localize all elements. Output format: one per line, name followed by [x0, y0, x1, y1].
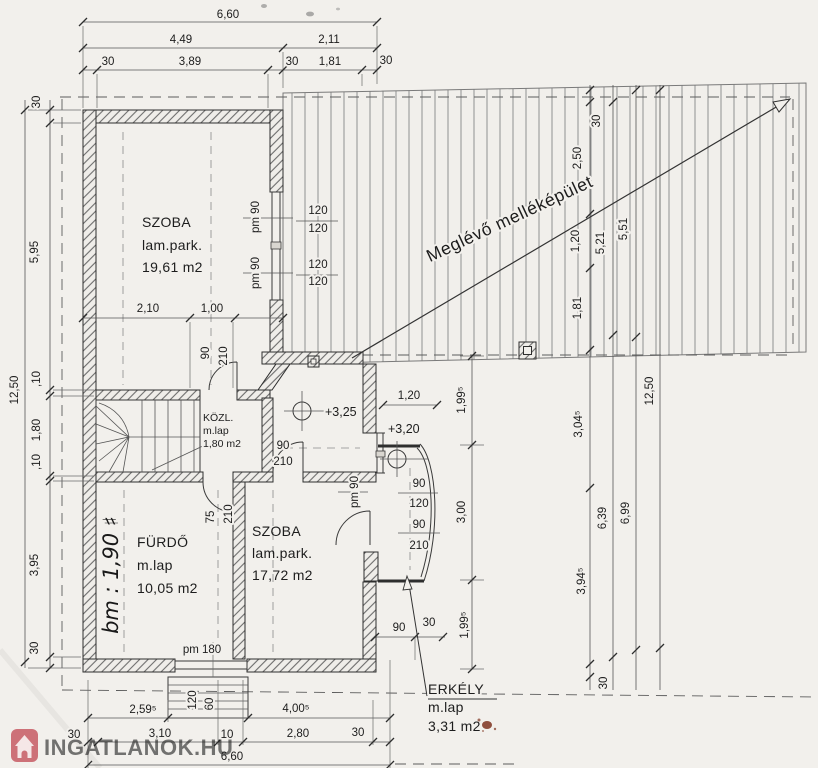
- dim-label: 30: [423, 617, 436, 629]
- window-size-label: 90: [413, 478, 426, 490]
- steps-size-label: 120: [187, 690, 199, 709]
- room-finish: m.lap: [203, 425, 229, 437]
- room-name: SZOBA: [142, 214, 191, 230]
- door-size-label: 210: [223, 504, 235, 523]
- dim-label: 1,20: [570, 230, 582, 252]
- window-parapet-label: pm 90: [250, 201, 262, 233]
- small-fixture: [308, 356, 319, 367]
- window-parapet-label: pm 180: [183, 644, 221, 656]
- dim-label: 5,51: [618, 218, 630, 240]
- window-size-label: 120: [308, 276, 327, 288]
- window-size-label: 120: [308, 205, 327, 217]
- window-size-label: 210: [409, 540, 428, 552]
- dim-label: 3,89: [179, 56, 201, 68]
- window-size-label: 120: [409, 498, 428, 510]
- dim-label: 6,39: [597, 507, 609, 529]
- dim-label: 30: [29, 642, 41, 655]
- door-size-label: 90: [277, 440, 290, 452]
- dim-label: 30: [598, 677, 610, 690]
- dim-label: 2,10: [137, 303, 159, 315]
- room-area: 19,61 m2: [142, 259, 203, 275]
- room-finish: lam.park.: [142, 237, 202, 253]
- dim-label: 1,20: [398, 390, 420, 402]
- floor-plan-page: 6,60 4,49 2,11 30 3,89 30 1,81 30 30 5,9…: [0, 0, 818, 768]
- dim-label: 6,60: [217, 9, 239, 21]
- dim-label: 30: [31, 96, 43, 109]
- dim-label: 3,95: [29, 554, 41, 576]
- dim-label: 1,80: [31, 419, 43, 441]
- floor-plan-svg: 6,60 4,49 2,11 30 3,89 30 1,81 30 30 5,9…: [0, 0, 818, 768]
- door-size-label: 210: [218, 346, 230, 365]
- window-size-label: 120: [308, 259, 327, 271]
- window-size-label: 90: [413, 519, 426, 531]
- dim-label: 1,00: [201, 303, 223, 315]
- room-name: KÖZL.: [203, 412, 233, 424]
- room-name: FÜRDŐ: [137, 533, 188, 550]
- room-name: ERKÉLY: [428, 681, 484, 697]
- watermark-text: INGATLANOK.HU: [44, 735, 233, 760]
- room-area: 1,80 m2: [203, 438, 241, 450]
- dim-label: 4,49: [170, 34, 192, 46]
- room-finish: lam.park.: [252, 545, 312, 561]
- dim-label: 30: [380, 55, 393, 67]
- room-name: SZOBA: [252, 523, 301, 539]
- dim-label: 2,80: [287, 728, 309, 740]
- door-size-label: 75: [205, 511, 217, 524]
- dim-label: 2,50: [572, 147, 584, 169]
- house-icon-door: [22, 751, 28, 759]
- dim-label: ,10: [31, 454, 43, 470]
- room-finish: m.lap: [428, 699, 464, 715]
- steps-size-label: 60: [204, 698, 216, 711]
- dim-label: 12,50: [644, 377, 656, 406]
- dim-label: ,10: [31, 371, 43, 387]
- dim-label: 1,81: [319, 56, 341, 68]
- dim-label: 2,11: [318, 34, 340, 46]
- room-area: 17,72 m2: [252, 567, 313, 583]
- door-size-label: 210: [273, 456, 292, 468]
- dim-label: 90: [393, 622, 406, 634]
- dim-label: 2,59⁵: [129, 704, 156, 716]
- dim-label: 30: [352, 727, 365, 739]
- dim-label: 12,50: [9, 376, 21, 405]
- dim-label: 5,95: [29, 241, 41, 263]
- dim-label: 1,99⁵: [456, 386, 468, 413]
- dim-label: 30: [102, 56, 115, 68]
- room-area: 3,31 m2: [428, 718, 481, 734]
- watermark-logo: [11, 729, 38, 762]
- dim-label: 30: [286, 56, 299, 68]
- level-label-upper: +3,25: [325, 405, 357, 419]
- dim-label: 5,21: [595, 232, 607, 254]
- dim-label: 3,00: [456, 501, 468, 523]
- dim-label: 3,04⁵: [573, 410, 585, 437]
- window-parapet-label: pm 90: [250, 257, 262, 289]
- dim-label: 1,81: [572, 297, 584, 319]
- room-area: 10,05 m2: [137, 580, 198, 596]
- dim-label: 6,99: [620, 502, 632, 524]
- level-label-lower: +3,20: [388, 422, 420, 436]
- dim-label: 30: [591, 115, 603, 128]
- door-size-label: 90: [200, 347, 212, 360]
- house-icon-window: [23, 739, 26, 742]
- handwritten-note: bm : 1,90 ♯: [99, 516, 123, 634]
- window-parapet-label: pm 90: [349, 476, 361, 508]
- chimney-fixture: [519, 342, 536, 359]
- room-finish: m.lap: [137, 557, 173, 573]
- dim-label: 4,00⁵: [282, 703, 309, 715]
- window-size-label: 120: [308, 223, 327, 235]
- outbuilding: [283, 83, 806, 364]
- dim-label: 1,99⁵: [459, 611, 471, 638]
- dim-label: 3,94⁵: [576, 567, 588, 594]
